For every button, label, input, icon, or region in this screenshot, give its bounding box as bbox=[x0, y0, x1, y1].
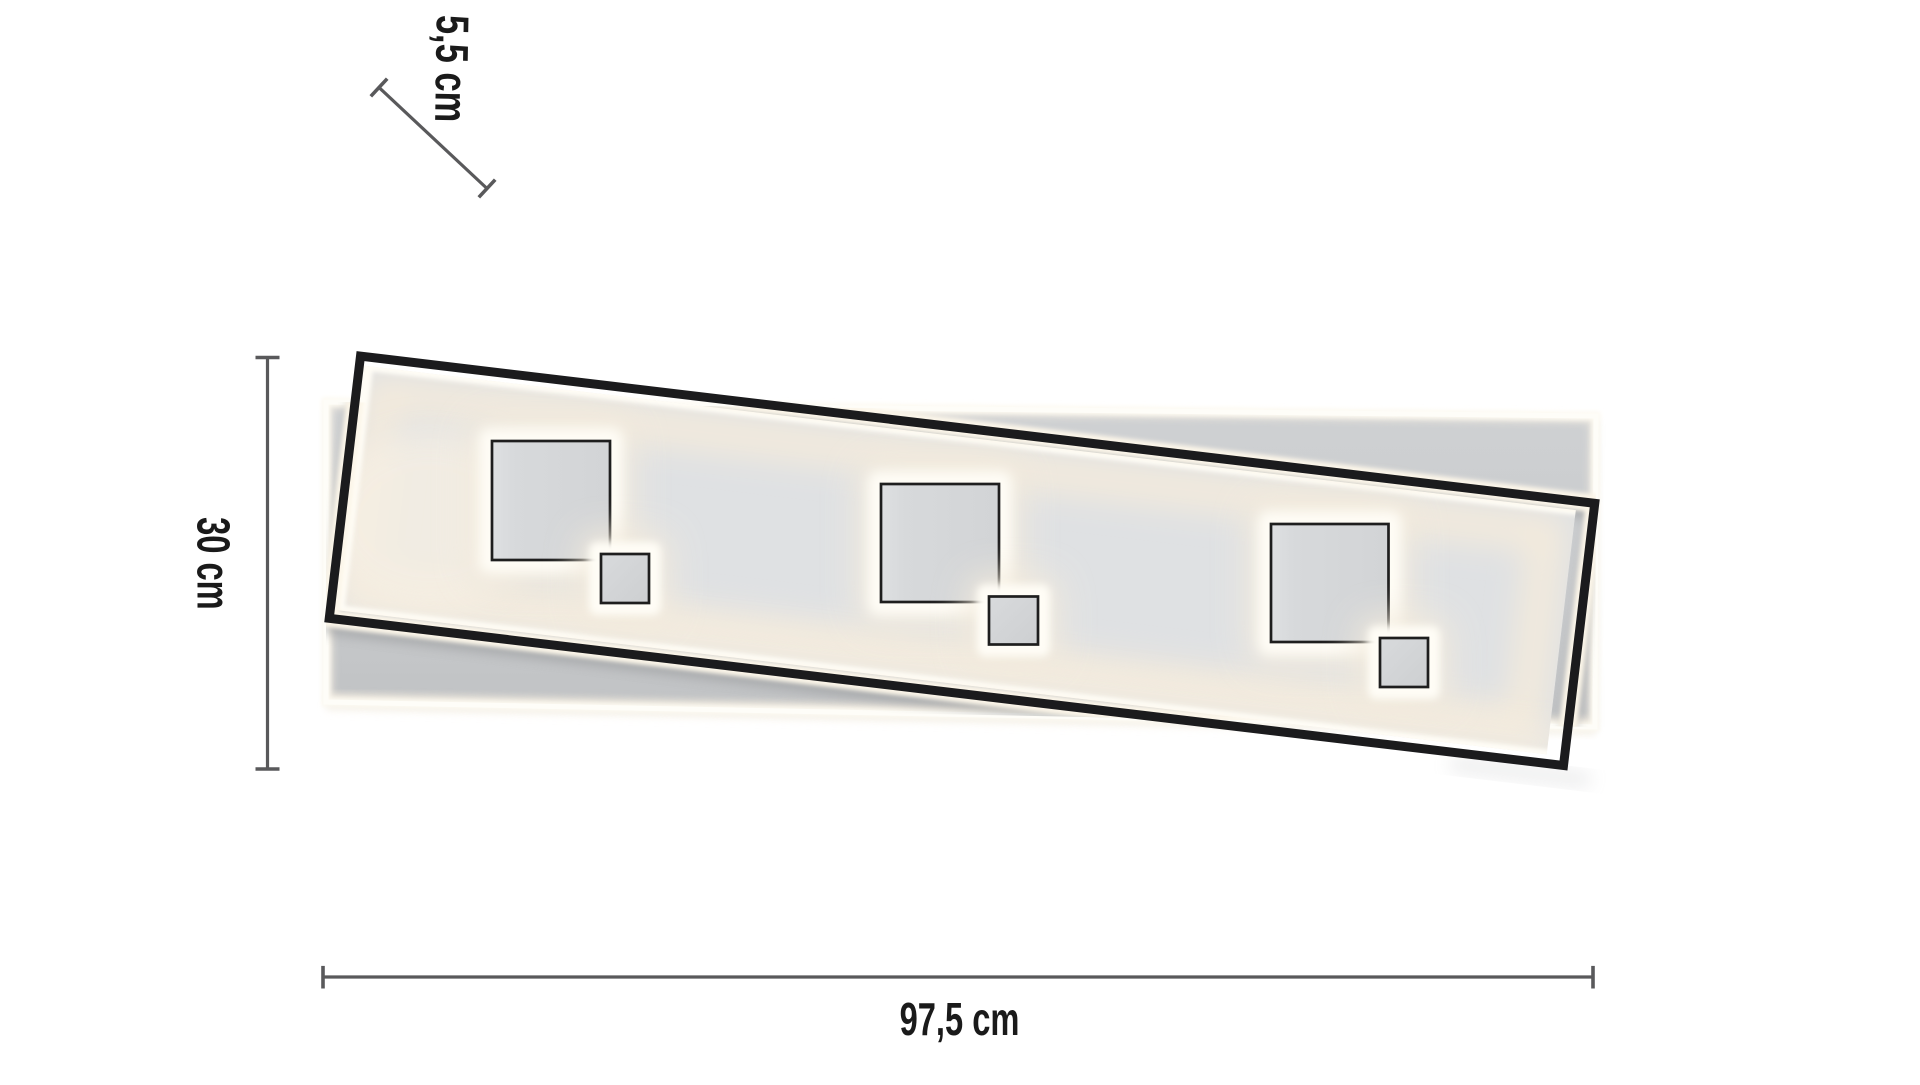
svg-text:97,5 cm: 97,5 cm bbox=[900, 995, 1020, 1046]
svg-text:5,5 cm: 5,5 cm bbox=[425, 15, 479, 123]
svg-text:30 cm: 30 cm bbox=[187, 517, 238, 610]
